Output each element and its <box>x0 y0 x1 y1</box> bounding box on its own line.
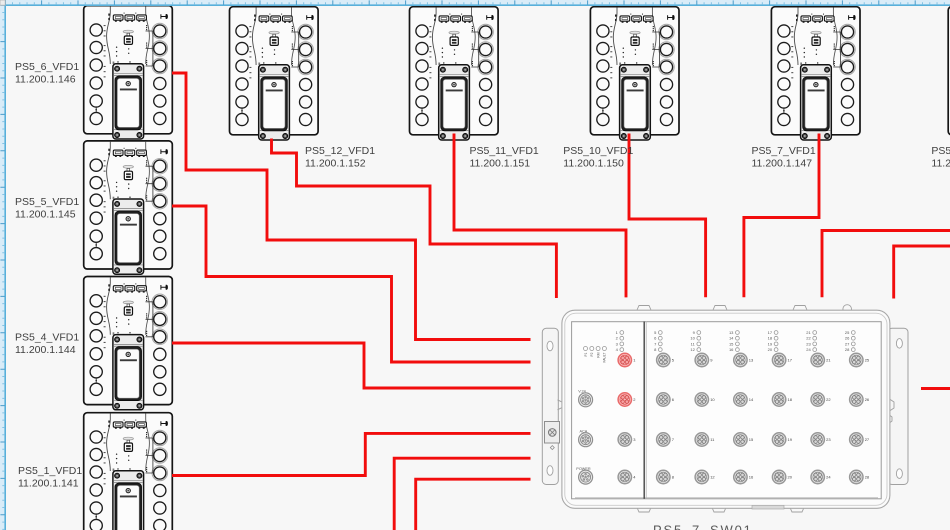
svg-text:25: 25 <box>865 358 870 363</box>
svg-text:27: 27 <box>845 341 850 346</box>
svg-text:26: 26 <box>865 397 870 402</box>
svg-text:12: 12 <box>690 347 695 352</box>
svg-text:PS5_6_VFD1: PS5_6_VFD1 <box>15 61 79 73</box>
svg-text:18: 18 <box>768 336 773 341</box>
svg-text:P1: P1 <box>584 352 588 356</box>
svg-text:PS5_5_VFD1: PS5_5_VFD1 <box>15 196 79 208</box>
svg-text:11.200.1.145: 11.200.1.145 <box>15 209 76 221</box>
svg-text:FAULT: FAULT <box>603 353 607 363</box>
svg-text:17: 17 <box>788 358 793 363</box>
svg-text:26: 26 <box>845 336 850 341</box>
svg-text:24: 24 <box>826 475 831 480</box>
svg-text:11.200.1.150: 11.200.1.150 <box>563 157 624 169</box>
svg-text:11.200.1.146: 11.200.1.146 <box>15 74 76 86</box>
svg-text:P2: P2 <box>590 352 594 356</box>
svg-text:20: 20 <box>768 347 773 352</box>
svg-text:PS5_10_VFD1: PS5_10_VFD1 <box>563 145 633 157</box>
svg-text:16: 16 <box>729 347 734 352</box>
svg-text:19: 19 <box>788 437 793 442</box>
svg-text:20: 20 <box>788 475 793 480</box>
svg-text:24: 24 <box>806 347 811 352</box>
svg-text:28: 28 <box>865 475 870 480</box>
svg-text:PS5_4_VFD1: PS5_4_VFD1 <box>15 331 79 343</box>
svg-text:11.200.1.152: 11.200.1.152 <box>305 157 366 169</box>
svg-text:PS5_12_VFD1: PS5_12_VFD1 <box>305 145 375 157</box>
svg-text:27: 27 <box>865 437 870 442</box>
svg-text:21: 21 <box>806 330 811 335</box>
svg-text:28: 28 <box>845 347 850 352</box>
svg-text:12: 12 <box>710 475 715 480</box>
svg-text:PS5_11_VFD1: PS5_11_VFD1 <box>470 145 539 157</box>
svg-text:22: 22 <box>826 397 831 402</box>
svg-text:22: 22 <box>806 336 811 341</box>
svg-text:15: 15 <box>749 437 754 442</box>
svg-text:11.200.1.148: 11.200.1.148 <box>931 157 950 169</box>
svg-text:18: 18 <box>788 397 793 402</box>
svg-text:13: 13 <box>729 330 734 335</box>
svg-text:23: 23 <box>806 341 811 346</box>
svg-text:14: 14 <box>749 397 754 402</box>
svg-text:11.200.1.144: 11.200.1.144 <box>15 344 76 356</box>
svg-text:16: 16 <box>749 475 754 480</box>
svg-text:14: 14 <box>729 336 734 341</box>
svg-text:23: 23 <box>826 437 831 442</box>
svg-text:13: 13 <box>749 358 754 363</box>
svg-text:10: 10 <box>690 336 695 341</box>
svg-text:PS5_7_SW01: PS5_7_SW01 <box>653 523 753 530</box>
svg-text:PS5_8_VFD1: PS5_8_VFD1 <box>931 145 950 157</box>
svg-text:25: 25 <box>845 330 850 335</box>
svg-text:10: 10 <box>710 397 715 402</box>
svg-text:15: 15 <box>729 341 734 346</box>
svg-text:RM: RM <box>596 352 600 357</box>
svg-text:PS5_7_VFD1: PS5_7_VFD1 <box>752 145 816 157</box>
svg-text:11.200.1.151: 11.200.1.151 <box>470 157 531 169</box>
svg-text:21: 21 <box>826 358 831 363</box>
svg-text:PS5_1_VFD1: PS5_1_VFD1 <box>18 465 82 477</box>
svg-text:17: 17 <box>768 330 773 335</box>
svg-text:19: 19 <box>768 341 773 346</box>
svg-text:11.200.1.141: 11.200.1.141 <box>18 477 79 489</box>
svg-text:11.200.1.147: 11.200.1.147 <box>752 157 813 169</box>
